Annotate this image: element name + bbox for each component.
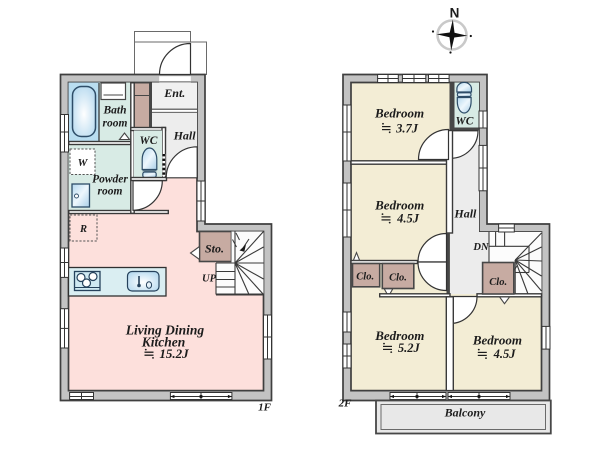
svg-text:WC: WC <box>140 135 158 147</box>
svg-text:15.2J: 15.2J <box>159 346 189 361</box>
svg-text:2F: 2F <box>338 398 353 410</box>
svg-text:Powder: Powder <box>92 174 128 186</box>
svg-text:Hall: Hall <box>173 129 197 143</box>
svg-text:Hall: Hall <box>453 207 477 221</box>
svg-text:Ent.: Ent. <box>163 86 185 100</box>
svg-text:UP: UP <box>202 274 217 285</box>
svg-text:Balcony: Balcony <box>444 406 486 420</box>
svg-text:Bedroom: Bedroom <box>472 333 522 348</box>
svg-text:DN: DN <box>472 242 489 253</box>
svg-text:1F: 1F <box>258 402 272 414</box>
svg-text:W: W <box>78 157 89 169</box>
svg-text:Sto.: Sto. <box>205 241 224 255</box>
svg-text:Bedroom: Bedroom <box>374 106 424 121</box>
svg-text:4.5J: 4.5J <box>493 347 517 361</box>
svg-text:R: R <box>79 224 87 235</box>
svg-text:Clo.: Clo. <box>489 277 507 288</box>
svg-text:room: room <box>98 186 123 198</box>
svg-text:3.7J: 3.7J <box>395 122 419 136</box>
svg-text:room: room <box>103 118 128 130</box>
svg-text:Clo.: Clo. <box>356 272 374 283</box>
svg-text:4.5J: 4.5J <box>396 212 420 226</box>
svg-text:5.2J: 5.2J <box>398 341 421 355</box>
svg-text:N: N <box>450 6 460 21</box>
svg-text:Bath: Bath <box>102 105 126 117</box>
svg-text:Clo.: Clo. <box>389 273 407 284</box>
svg-text:Bedroom: Bedroom <box>374 198 424 213</box>
svg-text:WC: WC <box>456 116 474 128</box>
